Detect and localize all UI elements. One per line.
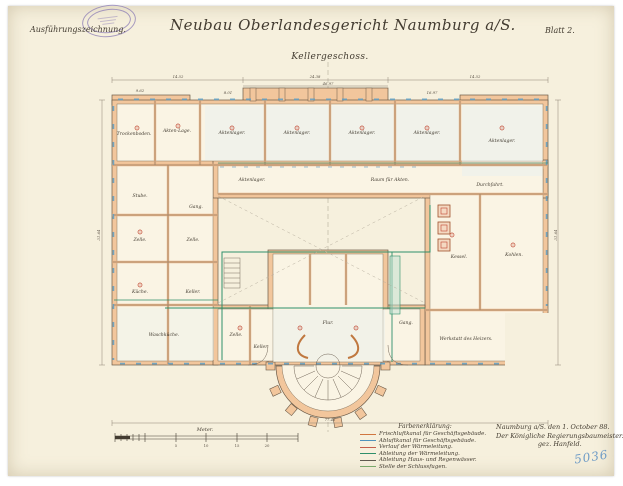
dim-label: 77.45 xyxy=(325,417,336,422)
room-label: Küche. xyxy=(131,289,149,295)
room-label: Raum für Akten. xyxy=(370,177,410,183)
room-label: Kohlen. xyxy=(504,252,523,258)
room-label: Aktenlager. xyxy=(348,130,376,136)
legend-row: Ableitung Haus- und Regenwässer. xyxy=(360,457,490,464)
legend-label: Verlauf der Wärmeleitung. xyxy=(379,444,453,450)
color-legend: Farbenerklärung: Frischluftkanal für Ges… xyxy=(360,423,490,470)
dim-label: 8.01 xyxy=(224,90,232,95)
dim-label: 14.52 xyxy=(173,74,184,79)
dim-label: 31.64 xyxy=(553,229,558,240)
room-label: Werkstatt des Heizers. xyxy=(440,336,494,342)
legend-swatch xyxy=(360,440,376,441)
legend-label: Stelle der Schlussfugen. xyxy=(379,464,447,470)
legend-swatch xyxy=(360,447,376,448)
scale-tick-label: 20 xyxy=(265,443,270,448)
room-label: Aktenlager. xyxy=(283,130,311,136)
dim-label: 14.52 xyxy=(470,74,481,79)
dim-label: 9.62 xyxy=(136,88,145,93)
drawing-sheet: Ausführungszeichnung. Neubau Oberlandesg… xyxy=(0,0,623,486)
scale-tick-label: 10 xyxy=(204,443,209,448)
room-label: Zelle. xyxy=(185,237,200,243)
boiler-units xyxy=(438,205,450,251)
legend-swatch xyxy=(360,453,376,454)
scale-bar-label: Meter. xyxy=(196,427,214,433)
room-label: Zelle. xyxy=(228,332,243,338)
dim-label: 46.97 xyxy=(322,81,334,86)
courtyard-stair xyxy=(224,258,240,288)
room-label: Aktenlager. xyxy=(488,138,516,144)
scale-bar: Meter. 5 10 15 20 xyxy=(115,427,298,448)
room-label: Akten-Lage. xyxy=(162,128,192,134)
legend-row: Stelle der Schlussfugen. xyxy=(360,464,490,471)
legend-title: Farbenerklärung: xyxy=(360,423,490,430)
room-label: Aktenlager. xyxy=(218,130,246,136)
signature-role: Der Königliche Regierungsbaumeister. xyxy=(496,432,623,441)
scale-tick-label: 5 xyxy=(175,443,178,448)
scale-tick-label: 15 xyxy=(235,443,240,448)
room-label: Trockenboden. xyxy=(117,131,152,137)
dim-label: 31.64 xyxy=(96,229,101,240)
legend-swatch xyxy=(360,434,376,435)
legend-swatch xyxy=(360,460,376,461)
legend-row: Abluftkanal für Geschäftsgebäude. xyxy=(360,438,490,445)
room-label: Keller. xyxy=(185,289,201,295)
legend-row: Frischluftkanal für Geschäftsgebäude. xyxy=(360,431,490,438)
room-label: Gang. xyxy=(399,320,413,326)
legend-label: Ableitung der Wärmeleitung. xyxy=(379,451,460,457)
room-label: Aktenlager. xyxy=(413,130,441,136)
legend-label: Abluftkanal für Geschäftsgebäude. xyxy=(379,438,476,444)
scale-bar-filled-segment xyxy=(115,436,130,439)
room-label: Aktenlager. xyxy=(238,177,266,183)
room-label: Stube. xyxy=(132,193,148,199)
legend-label: Frischluftkanal für Geschäftsgebäude. xyxy=(379,431,486,437)
legend-label: Ableitung Haus- und Regenwässer. xyxy=(379,457,477,463)
room-label: Durchfahrt. xyxy=(475,182,504,188)
room-label: Flur. xyxy=(322,320,334,326)
signature-place-date: Naumburg a/S. den 1. October 88. xyxy=(496,423,623,432)
room-label: Keller. xyxy=(253,344,269,350)
legend-swatch xyxy=(360,466,376,467)
dim-label: 24.38 xyxy=(309,74,321,79)
dim-label: 16.97 xyxy=(427,90,438,95)
floor-plan: 14.52 24.38 14.52 46.97 77.45 31.64 31.6… xyxy=(0,0,623,486)
signature-block: Naumburg a/S. den 1. October 88. Der Kön… xyxy=(496,423,623,449)
footprint-notch xyxy=(505,313,550,367)
room-label: Gang. xyxy=(189,204,203,210)
room-label: Kessel. xyxy=(450,254,468,260)
room-label: Zelle. xyxy=(132,237,147,243)
room-label: Waschküche. xyxy=(149,332,180,338)
